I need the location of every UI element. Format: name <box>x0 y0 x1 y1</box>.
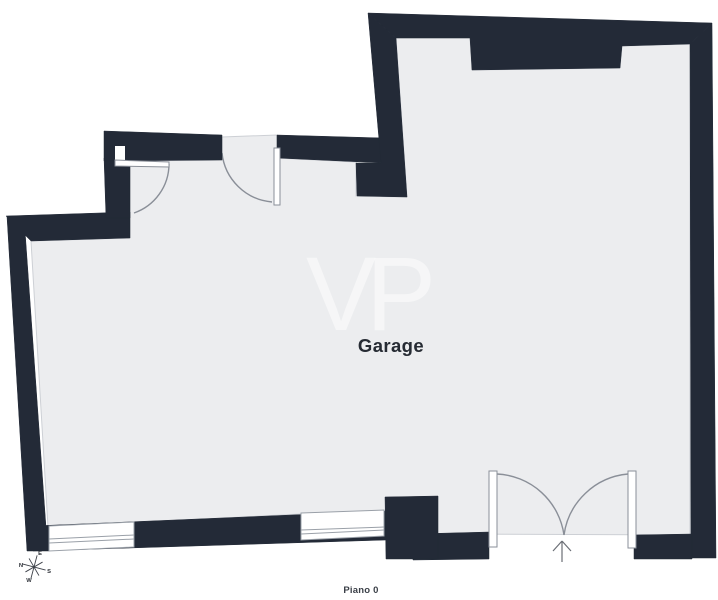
floor-plan-canvas: N E S W VP Garage Piano 0 <box>0 0 718 600</box>
door-post <box>628 471 636 548</box>
window <box>49 522 134 551</box>
wall-segment <box>690 23 716 558</box>
compass-east-label: E <box>38 551 42 557</box>
wall-segment <box>277 135 384 163</box>
door-jamb-gap <box>115 146 125 161</box>
entrance-arrow-icon <box>553 541 571 562</box>
compass-south-label: S <box>47 569 51 575</box>
compass-north-label: N <box>19 563 23 569</box>
door-post <box>489 471 497 547</box>
level-label: Piano 0 <box>343 585 378 596</box>
wall-segment <box>385 496 438 559</box>
wall-segment <box>634 534 692 559</box>
compass-west-label: W <box>26 578 32 584</box>
wall-segment <box>104 158 130 218</box>
compass-rose: N E S W <box>19 551 51 584</box>
room-label: Garage <box>358 335 424 356</box>
door-leaf <box>274 148 280 205</box>
window <box>301 510 384 540</box>
